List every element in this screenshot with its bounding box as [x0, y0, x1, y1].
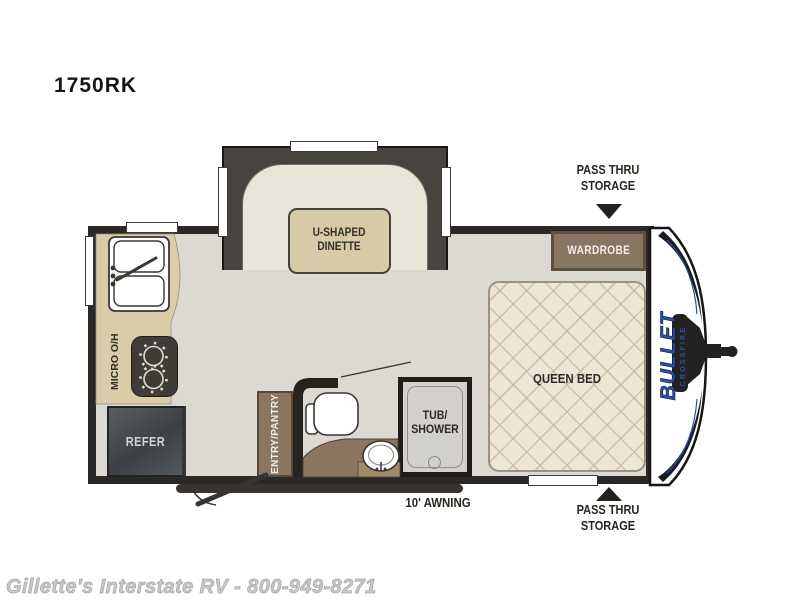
arrow-up-icon — [596, 487, 622, 501]
pass-thru-top-line1: PASS THRU — [561, 163, 654, 179]
micro-oh-label: MICRO O/H — [106, 326, 124, 398]
queen-bed: QUEEN BED — [488, 281, 646, 472]
tub-label-line2: SHOWER — [402, 423, 467, 437]
pass-thru-top-line2: STORAGE — [561, 179, 654, 195]
entry-pantry-label: ENTRY/PANTRY — [270, 394, 281, 474]
dinette-table: U-SHAPED DINETTE — [288, 208, 391, 274]
dinette-label-line2: DINETTE — [313, 241, 366, 255]
brand-make: BULLET — [658, 312, 679, 401]
cooktop — [131, 336, 178, 397]
model-title: 1750RK — [54, 74, 137, 98]
dinette-label-line1: U-SHAPED — [313, 227, 366, 241]
brand-decal: BULLET CROSSFIRE — [656, 283, 690, 429]
window-kitchen — [126, 222, 178, 233]
wardrobe-label: WARDROBE — [567, 245, 630, 257]
window-bedroom — [528, 475, 598, 486]
window-dinette-right — [441, 167, 451, 237]
window-dinette-left — [218, 167, 228, 237]
brand-series: CROSSFIRE — [679, 326, 688, 387]
refer-label: REFER — [126, 435, 165, 449]
arrow-down-icon — [596, 204, 622, 219]
pass-thru-bottom-line1: PASS THRU — [561, 503, 654, 519]
floorplan-page: 1750RK U-SHAPED DINETTE REFER MICRO O/H … — [0, 0, 800, 600]
dealer-watermark: Gillette's Interstate RV - 800-949-8271 — [6, 576, 377, 599]
entry-pantry-cabinet: ENTRY/PANTRY — [257, 391, 293, 477]
tub-label-line1: TUB/ — [402, 409, 467, 423]
refrigerator: REFER — [107, 406, 186, 477]
pass-thru-storage-top-label: PASS THRU STORAGE — [561, 163, 654, 194]
pass-thru-storage-bottom-label: PASS THRU STORAGE — [561, 503, 654, 534]
pass-thru-bottom-line2: STORAGE — [561, 519, 654, 535]
window-dinette-top — [290, 141, 378, 152]
wardrobe: WARDROBE — [551, 231, 646, 271]
tub-shower: TUB/ SHOWER — [398, 377, 472, 477]
tub-shower-label: TUB/ SHOWER — [402, 409, 467, 437]
awning-bar — [176, 484, 463, 493]
queen-bed-label: QUEEN BED — [499, 371, 635, 386]
window-left-wall — [85, 236, 94, 306]
awning-label: 10' AWNING — [394, 495, 482, 510]
drain-icon — [428, 456, 441, 469]
